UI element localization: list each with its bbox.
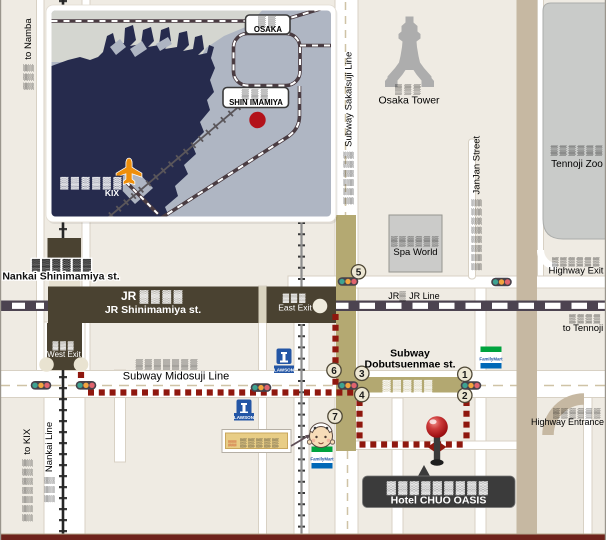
svg-text:7: 7: [332, 412, 338, 423]
svg-text:▒▒: ▒▒: [228, 440, 237, 447]
svg-text:▒▒▒▒▒▒▒ to KIX: ▒▒▒▒▒▒▒ to KIX: [22, 428, 33, 521]
svg-text:to Tennoji: to Tennoji: [563, 323, 604, 334]
svg-text:Nankai Shinimamiya st.: Nankai Shinimamiya st.: [2, 271, 119, 283]
svg-text:1: 1: [462, 370, 468, 381]
svg-text:Osaka Tower: Osaka Tower: [378, 95, 440, 107]
svg-text:▒▒▒▒▒▒ Subway Sakaisuji Line: ▒▒▒▒▒▒ Subway Sakaisuji Line: [344, 52, 355, 205]
svg-text:JR ▓▓▓▓: JR ▓▓▓▓: [121, 289, 185, 304]
svg-text:FamilyMart: FamilyMart: [310, 457, 334, 462]
svg-text:KIX: KIX: [105, 188, 120, 198]
svg-text:▒▒▒▒▒▒▒▒ JanJan Street: ▒▒▒▒▒▒▒▒ JanJan Street: [472, 135, 483, 270]
svg-text:Subway Midosuji Line: Subway Midosuji Line: [123, 371, 229, 383]
svg-text:▒▒▒ Nankai Line: ▒▒▒ Nankai Line: [44, 422, 55, 502]
svg-text:6: 6: [331, 366, 337, 377]
svg-text:OSAKA: OSAKA: [254, 25, 283, 34]
svg-text:JR Shinimamiya st.: JR Shinimamiya st.: [105, 304, 201, 316]
svg-text:LAWSON: LAWSON: [274, 367, 295, 372]
svg-text:▒▒▒: ▒▒▒: [395, 84, 423, 95]
svg-text:2: 2: [462, 391, 468, 402]
svg-text:Tennoji Zoo: Tennoji Zoo: [551, 159, 603, 170]
svg-text:Dobutsuenmae st.: Dobutsuenmae st.: [364, 359, 455, 371]
svg-text:▓▓▓▓▓: ▓▓▓▓▓: [382, 379, 434, 393]
svg-text:4: 4: [359, 390, 365, 401]
svg-text:3: 3: [359, 369, 365, 380]
svg-text:▒▒▒▒▒: ▒▒▒▒▒: [240, 438, 280, 449]
svg-text:▒▒▒▒▒▒▒: ▒▒▒▒▒▒▒: [136, 359, 200, 371]
svg-text:5: 5: [356, 268, 362, 279]
svg-text:▓▓▓▓▓▓▓▓▓: ▓▓▓▓▓▓▓▓▓: [387, 481, 491, 496]
svg-text:▒▒▒ to Namba: ▒▒▒ to Namba: [23, 18, 34, 90]
svg-text:East Exit: East Exit: [278, 303, 312, 313]
svg-text:SHIN IMAMIYA: SHIN IMAMIYA: [229, 98, 283, 107]
svg-text:Highway Exit: Highway Exit: [549, 266, 604, 277]
svg-text:Hotel CHUO OASIS: Hotel CHUO OASIS: [391, 495, 487, 507]
svg-text:JR▒ JR Line: JR▒ JR Line: [388, 291, 439, 302]
svg-text:Highway Entrance: Highway Entrance: [531, 417, 604, 427]
svg-text:▒▒▒▒▒▒: ▒▒▒▒▒▒: [391, 236, 440, 247]
svg-text:FamilyMart: FamilyMart: [479, 357, 503, 362]
svg-text:▒▒▒▒▒▒: ▒▒▒▒▒▒: [551, 146, 605, 157]
svg-text:Spa World: Spa World: [393, 247, 437, 258]
svg-text:West Exit: West Exit: [47, 350, 81, 359]
svg-text:LAWSON: LAWSON: [234, 415, 255, 420]
